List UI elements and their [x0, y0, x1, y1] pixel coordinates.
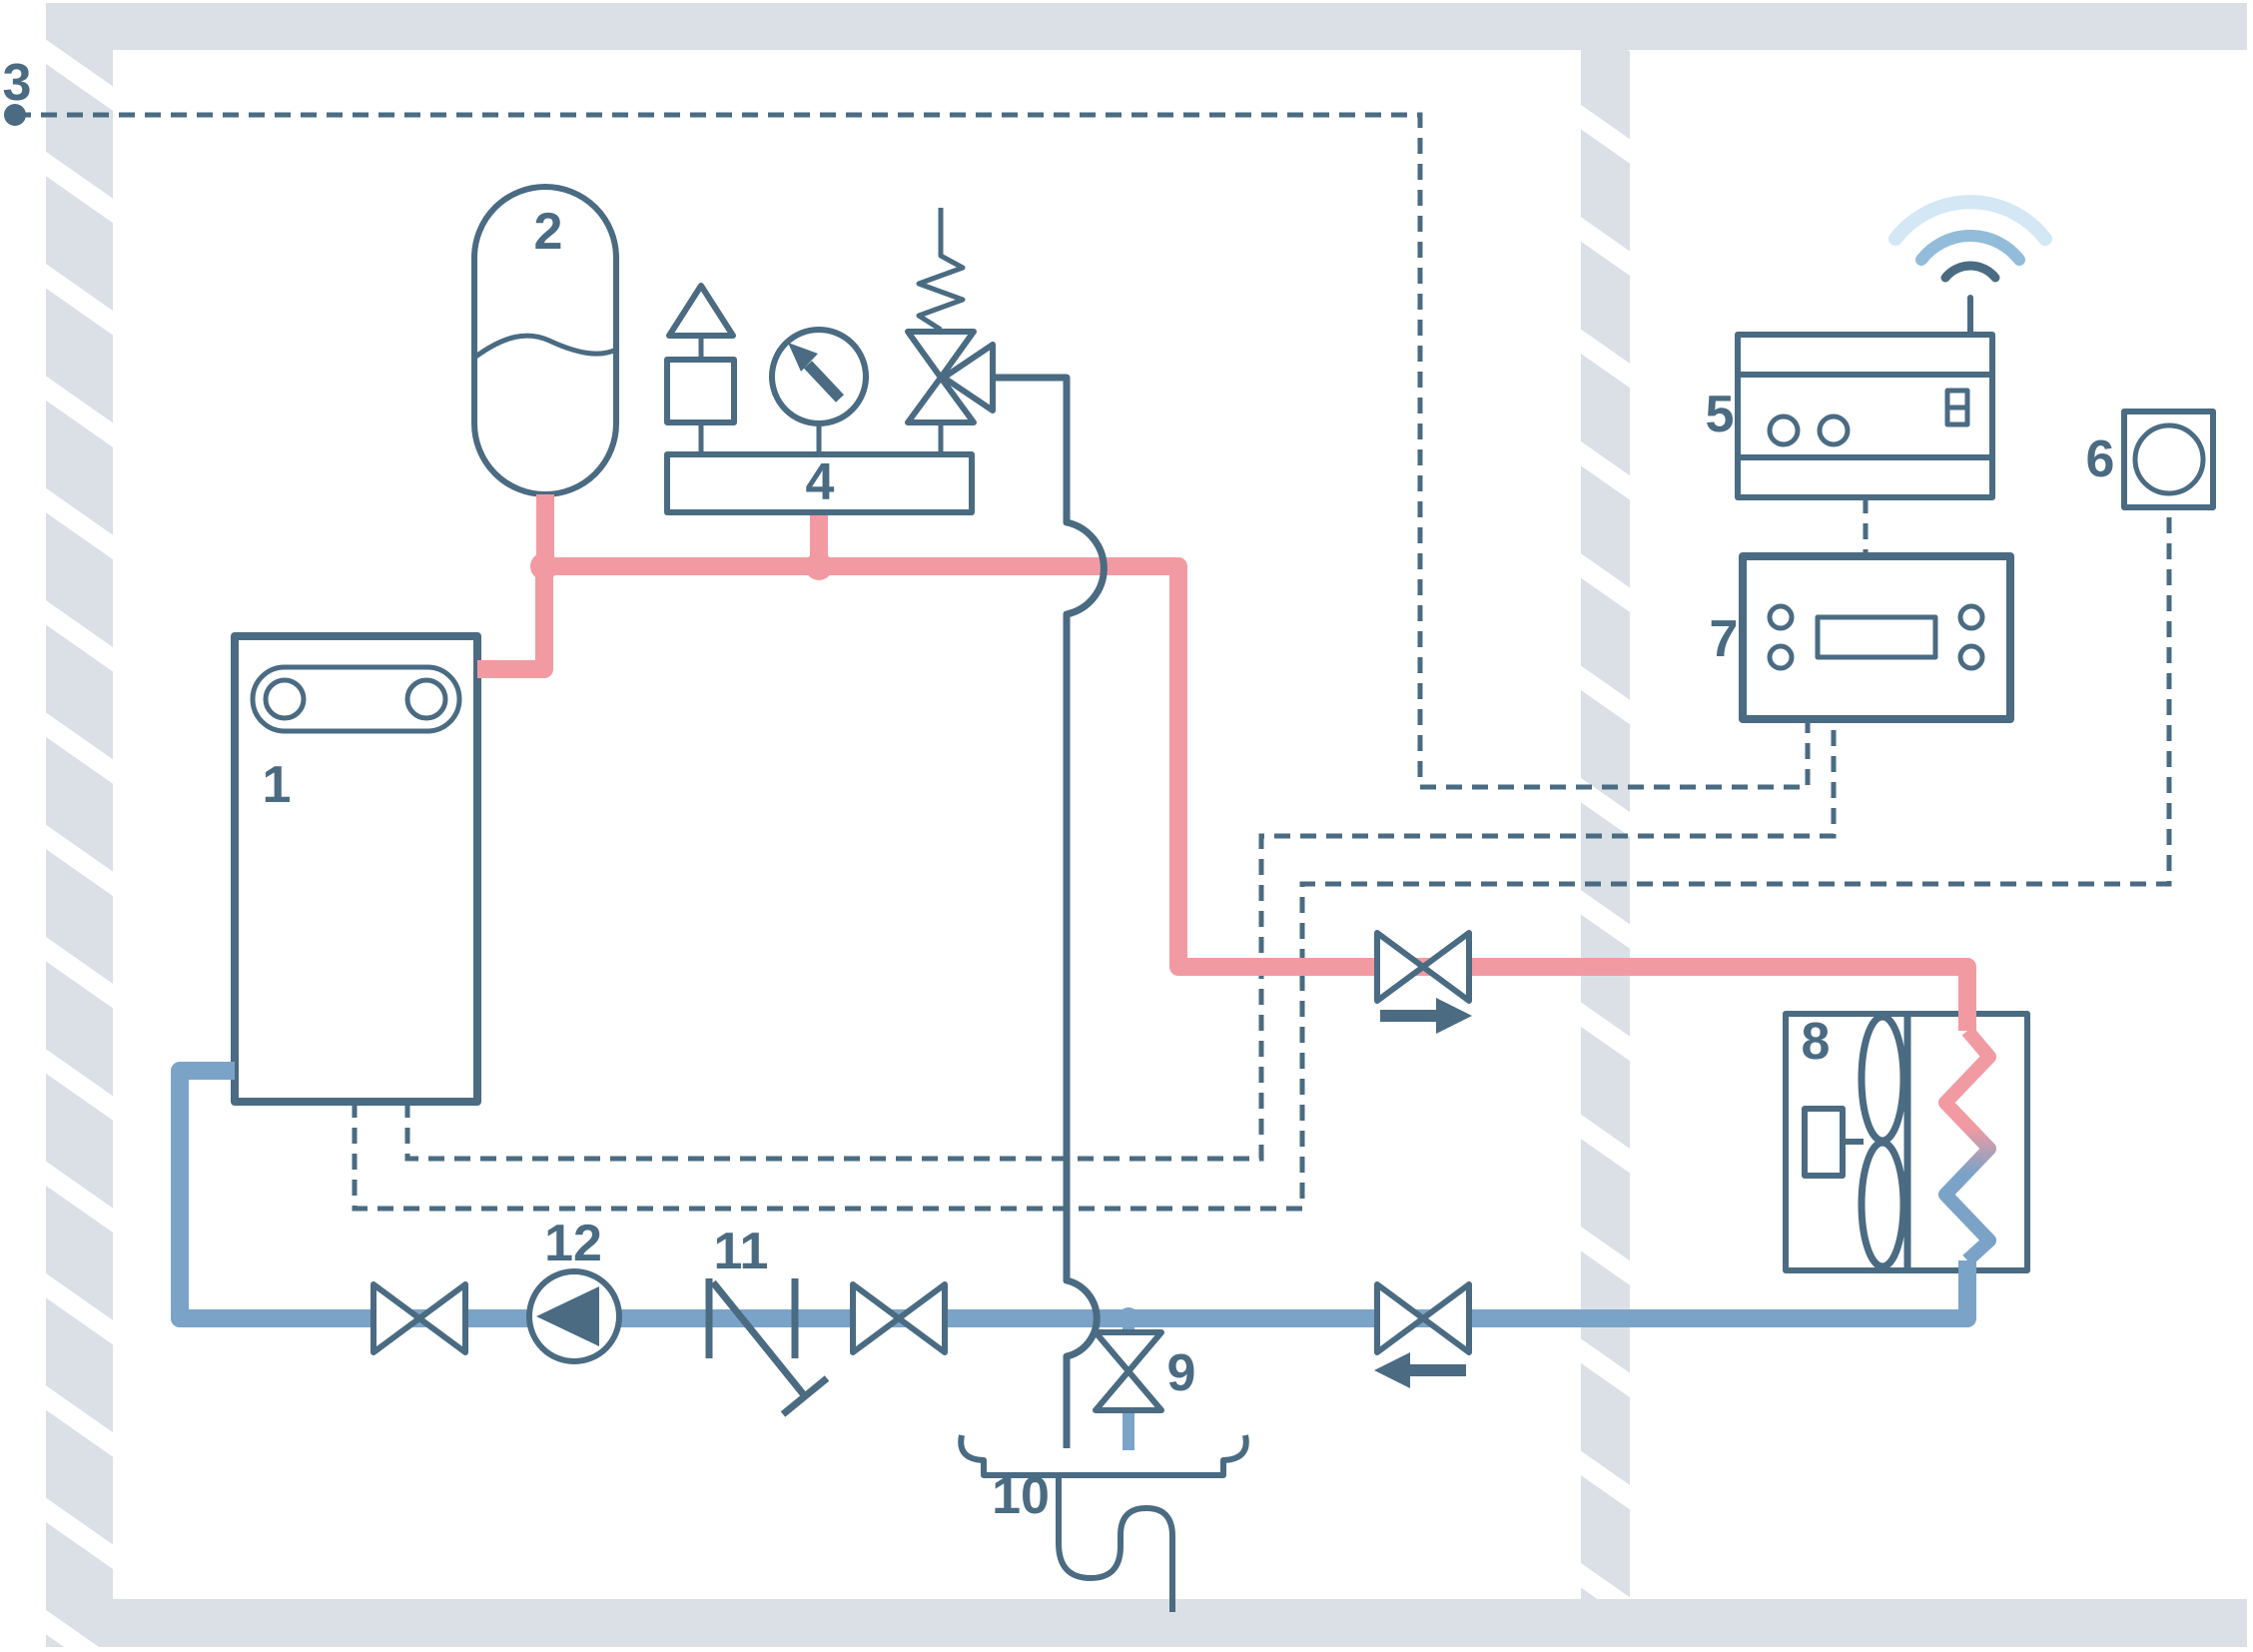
flow-arrow-left-icon: [1374, 1352, 1410, 1388]
label-pump: 12: [544, 1215, 602, 1272]
label-controller: 7: [1710, 610, 1739, 668]
shutoff-valve-supply: [1377, 933, 1472, 1034]
safety-discharge-pipe: [991, 378, 1104, 1448]
valve-left-half: [374, 1284, 419, 1352]
label-gateway: 5: [1706, 386, 1735, 443]
pipe-junction-dot: [805, 552, 833, 580]
wall-interior-hatched: [1581, 50, 1630, 1599]
wall-top: [46, 3, 2247, 50]
valve-left-half: [853, 1284, 899, 1352]
wifi-arc-small-icon: [1945, 266, 1995, 278]
shutoff-valve-return-right: [1374, 1284, 1469, 1388]
air-vent-icon: [669, 286, 733, 336]
shutoff-valve-return-left: [374, 1284, 465, 1352]
filter-pocket: [713, 1282, 805, 1396]
siphon-trap: [1059, 1475, 1172, 1612]
outdoor-sensor: [2124, 412, 2213, 507]
wifi-arc-medium-icon: [1921, 236, 2019, 260]
strainer-filter: [709, 1278, 827, 1414]
flow-arrow-right-icon: [1436, 998, 1472, 1034]
valve-left-half: [1377, 933, 1423, 1001]
indoor-unit: [235, 636, 477, 1102]
label-heat-pump: 8: [1802, 1013, 1831, 1071]
shutoff-valve-return-mid: [853, 1284, 945, 1352]
room-controller: [1743, 556, 2010, 719]
valve-right-half: [419, 1284, 465, 1352]
filter-pocket-cap: [783, 1378, 827, 1414]
drain-valve-upper: [1096, 1332, 1161, 1371]
label-expansion-vessel: 2: [534, 203, 563, 261]
wall-left-hatched: [46, 3, 113, 1647]
discharge-line: [991, 378, 1104, 1448]
indoor-unit-body: [235, 636, 477, 1102]
valve-left-half: [1377, 1284, 1423, 1352]
drain-assembly: [961, 1307, 1246, 1612]
air-vent-body: [667, 360, 734, 422]
label-filter: 11: [714, 1223, 769, 1280]
valve-right-half: [1423, 933, 1469, 1001]
label-indoor-unit: 1: [263, 756, 292, 814]
label-drain-funnel: 10: [992, 1467, 1050, 1525]
valve-right-half: [1423, 1284, 1469, 1352]
heating-system-schematic: 1 2 3 4 5 6 7 8 9 10 11 12: [0, 0, 2253, 1652]
wireless-gateway: [1738, 202, 2045, 497]
label-safety-group: 4: [806, 453, 835, 511]
safety-valve-spring: [919, 208, 963, 330]
pipe-junction-dot: [530, 552, 558, 580]
label-outdoor-sensor: 6: [2086, 430, 2115, 488]
drain-valve-lower: [1096, 1371, 1161, 1410]
fittings: [374, 933, 1472, 1414]
wall-bottom: [46, 1599, 2247, 1647]
label-drain-valve: 9: [1167, 1344, 1196, 1402]
controller-body: [1743, 556, 2010, 719]
circulation-pump: [529, 1271, 619, 1361]
valve-right-half: [899, 1284, 945, 1352]
label-room-sensor: 3: [3, 54, 32, 112]
